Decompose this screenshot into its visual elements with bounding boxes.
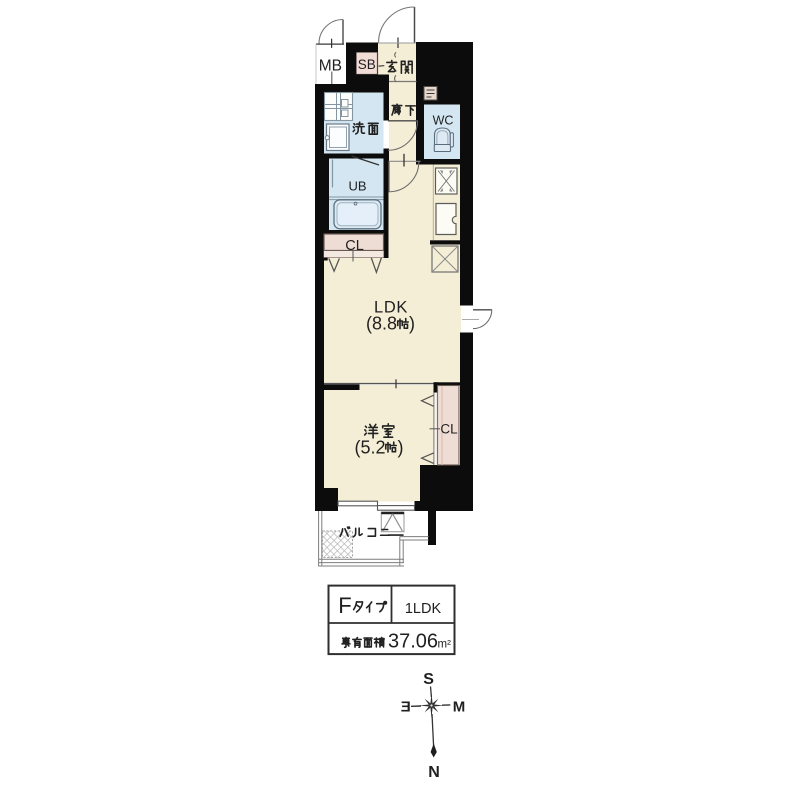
svg-text:WC: WC: [433, 113, 454, 127]
svg-text:CL: CL: [345, 238, 364, 254]
svg-text:MB: MB: [319, 58, 342, 75]
svg-text:F: F: [338, 593, 351, 618]
svg-text:37.06: 37.06: [388, 631, 438, 653]
svg-text:S: S: [423, 671, 434, 688]
svg-text:): ): [398, 438, 404, 458]
svg-text:UB: UB: [348, 179, 366, 194]
svg-text:(8.8: (8.8: [366, 314, 397, 334]
svg-text:SB: SB: [358, 57, 376, 72]
svg-text:(5.2: (5.2: [355, 438, 386, 458]
svg-text:N: N: [428, 764, 440, 781]
svg-text:m²: m²: [438, 639, 452, 651]
svg-text:E: E: [401, 699, 411, 716]
svg-text:1LDK: 1LDK: [405, 601, 442, 617]
svg-text:CL: CL: [440, 422, 458, 437]
svg-text:M: M: [453, 699, 466, 716]
svg-text:): ): [409, 314, 415, 334]
